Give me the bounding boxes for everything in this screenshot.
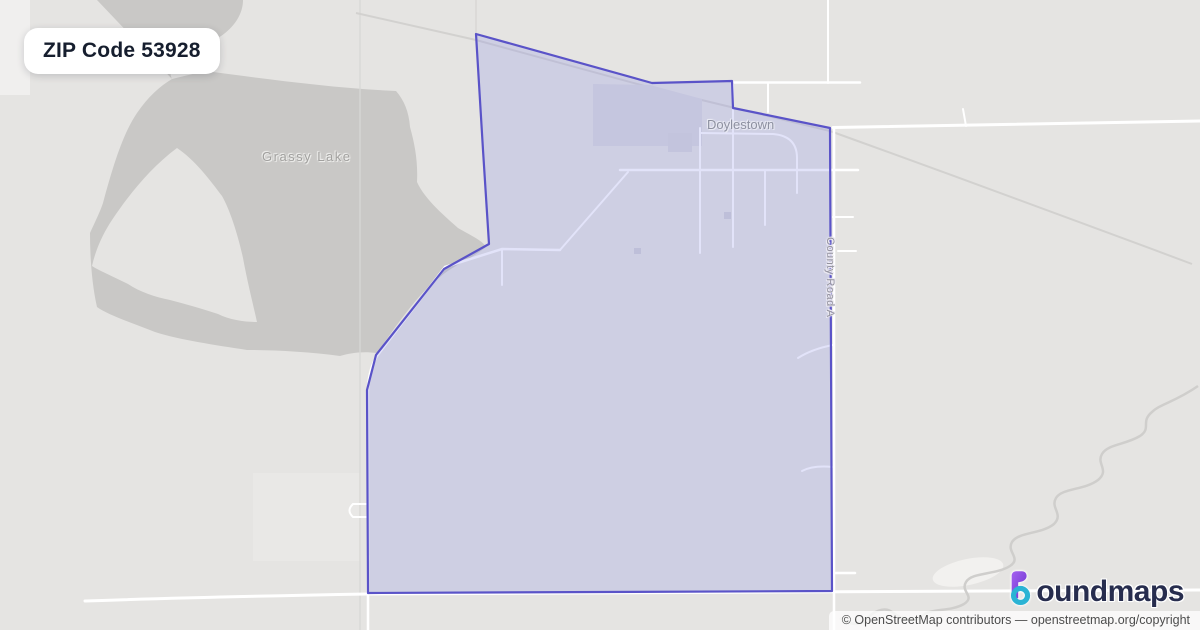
attribution-bar: © OpenStreetMap contributors — openstree… [829,611,1200,630]
boundmaps-logo: oundmaps [1007,570,1184,606]
boundmaps-logo-icon [1007,570,1035,606]
map-canvas: Grassy Lake Doylestown County Road A ZIP… [0,0,1200,630]
zip-code-badge: ZIP Code 53928 [24,28,220,74]
boundmaps-logo-text: oundmaps [1036,578,1184,607]
zip-boundary-polygon [367,34,832,593]
map-graphics [0,0,1200,630]
zip-code-badge-label: ZIP Code 53928 [43,39,201,63]
attribution-text[interactable]: © OpenStreetMap contributors — openstree… [842,611,1190,630]
